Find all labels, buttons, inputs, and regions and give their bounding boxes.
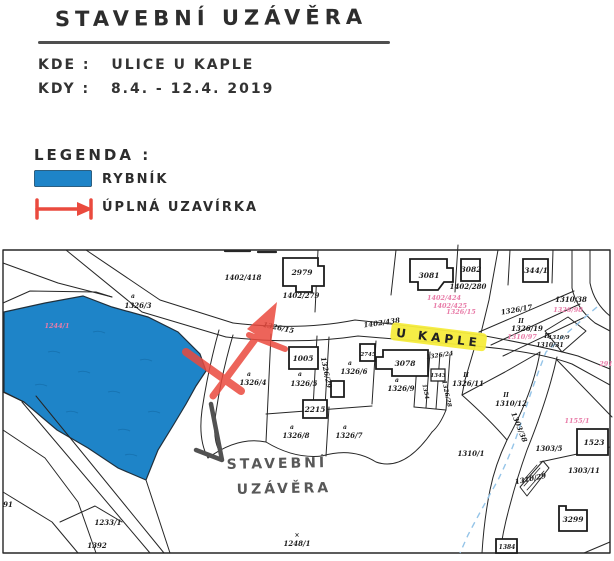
map-label: a (290, 424, 294, 431)
pond (4, 296, 206, 480)
map-label: 1005 (293, 354, 314, 363)
map-label: 2215 (304, 405, 326, 414)
annotation-line2: UZÁVĚRA (237, 479, 332, 498)
map-label: a (131, 293, 135, 300)
map-label: a (395, 377, 399, 384)
map-label: 344/1 (524, 266, 548, 275)
map-label: 1155/1 (565, 417, 590, 425)
map-label: 1248/1 (284, 539, 311, 548)
map-label: II (502, 392, 509, 399)
map-label: 1326/7 (336, 431, 363, 440)
map-label: 1244/1 (45, 322, 70, 330)
map-label: 1303/11 (568, 466, 600, 475)
map-label: 1343 (430, 373, 445, 379)
map-label: 1310/31 (536, 342, 563, 349)
map-label: 1310/9 (548, 335, 569, 341)
map-label: 1354 (420, 384, 429, 400)
map-label: 1392 (87, 541, 107, 550)
map-label: 1402/418 (225, 273, 262, 282)
map-label: 1326/3 (125, 301, 152, 310)
map-label: 3078 (395, 359, 417, 368)
map-label: 1326/11 (452, 379, 484, 388)
map-label: 1326/4 (240, 378, 267, 387)
map-label: 1384 (499, 544, 516, 551)
map-label: 1310/12 (495, 399, 527, 408)
cadastral-map: 1402/4181402/2791402/2801402/4241402/425… (0, 0, 614, 561)
map-label: 1233/1 (95, 518, 122, 527)
map-label: 3299 (563, 515, 585, 524)
map-label: 1326/6 (341, 367, 368, 376)
map-label: 2979 (291, 268, 314, 277)
map-label: × (294, 532, 299, 539)
map-label: 3081 (419, 271, 440, 280)
map-label: 1523 (584, 438, 605, 447)
annotation-arrow (196, 404, 222, 460)
map-label: 1326/29 (319, 356, 334, 389)
map-label: 1326/98 (553, 306, 583, 314)
map-label: 1310/1 (458, 449, 485, 458)
map-label: 1310/97 (507, 333, 537, 341)
map-label: 1326/8 (283, 431, 310, 440)
map-label: a (247, 371, 251, 378)
map-label: 1326/17 (500, 302, 533, 316)
notice-page: STAVEBNÍ UZÁVĚRA KDE : ULICE U KAPLE KDY… (0, 0, 614, 561)
map-label: a (343, 424, 347, 431)
annotation-line1: STAVEBNÍ (227, 454, 328, 473)
map-label: 291 (598, 360, 613, 368)
map-label: a (298, 371, 302, 378)
map-label: 1326/28 (440, 380, 453, 409)
map-label: 1303/5 (536, 444, 563, 453)
map-label: 1402/280 (450, 282, 487, 291)
map-label: 1326/19 (511, 324, 543, 333)
map-label: II (462, 372, 469, 379)
street-highlight: U KAPLE (390, 322, 487, 352)
map-label: 1402/279 (283, 291, 320, 300)
map-label: 2745 (359, 352, 375, 358)
map-label: a (348, 360, 352, 367)
map-label: 1402/424 (427, 294, 462, 302)
map-label: 1326/15 (446, 308, 476, 316)
map-label: 1310/38 (555, 295, 587, 304)
map-label: 1303/38 (509, 411, 529, 444)
map-label: 91 (3, 500, 13, 509)
map-label: 3082 (461, 265, 482, 274)
map-label: 1326/5 (291, 379, 318, 388)
map-label: 1326/9 (388, 384, 415, 393)
